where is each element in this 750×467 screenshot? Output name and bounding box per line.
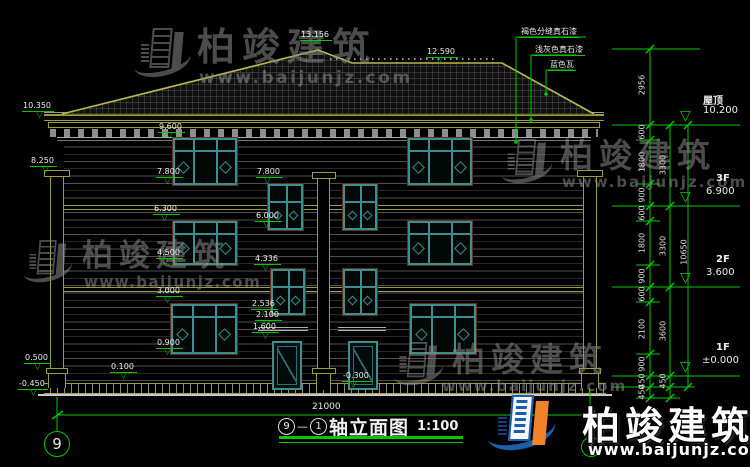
elevation-marker: 6.300▽ <box>153 204 180 222</box>
axis-circle-start: 9 <box>278 418 295 435</box>
elevation-marker: 12.590▽ <box>426 47 458 65</box>
material-label-blue-tile: 蓝色瓦 <box>548 60 576 71</box>
elevation-marker: 0.500▽ <box>24 353 51 371</box>
material-label-stone-paint-gray: 浅灰色真石漆 <box>533 45 585 56</box>
center-pilaster-pedestal <box>316 374 331 390</box>
logo-building <box>508 395 534 441</box>
elevation-marker: 6.000▽ <box>255 211 282 229</box>
window-triple <box>408 138 472 185</box>
dimension-value: 2956 <box>638 75 647 95</box>
brand-name: 柏竣建筑 <box>452 343 608 376</box>
dimension-value: 450 <box>659 373 668 388</box>
level-triangle: ▽ <box>680 272 691 284</box>
material-label-stone-paint-brown: 褐色分缝真石漆 <box>519 27 579 38</box>
window-stair <box>343 269 377 315</box>
entry-door-left <box>272 341 302 390</box>
elevation-marker: 4.336▽ <box>254 254 281 272</box>
dimension-value: 900 <box>638 268 647 283</box>
dimension-value: 1800 <box>638 233 647 253</box>
overall-width-dimension: 21000 <box>312 402 341 412</box>
brand-url: www.baijunjz.com <box>442 379 627 394</box>
title-underline-thick <box>279 436 463 439</box>
brand-name: 柏竣建筑 <box>197 28 377 66</box>
cad-elevation-drawing: 柏竣建筑 www.baijunjz.com 柏竣建筑 www.baijunjz.… <box>0 0 750 467</box>
level-triangle: ▽ <box>680 110 691 122</box>
drawing-scale: 1:100 <box>417 419 458 434</box>
dimension-value: 600 <box>638 286 647 301</box>
dimension-value: 900 <box>638 187 647 202</box>
floor-label-1f: 1F <box>716 342 730 353</box>
elevation-marker: 1.600▽ <box>252 322 279 340</box>
logo-windows <box>498 417 507 437</box>
floor-label-2f: 2F <box>716 254 730 265</box>
grid-bubble-9: 9 <box>44 431 70 457</box>
watermark-bottom: 柏竣建筑 www.baijunjz.com <box>396 340 636 398</box>
elevation-marker: -0.450▽ <box>18 379 48 397</box>
floor-value-roof: 10.200 <box>703 105 738 116</box>
title-underline-thin <box>279 442 463 443</box>
left-pilaster-pedestal <box>48 374 66 388</box>
window-stair <box>343 184 377 230</box>
level-triangle: ▽ <box>680 361 691 373</box>
dimension-value: 600 <box>638 124 647 139</box>
elevation-marker: 0.100▽ <box>110 362 137 380</box>
elevation-marker: 10.350▽ <box>22 101 54 119</box>
brand-url: www.baijunjz.com <box>199 70 413 87</box>
elevation-marker: -0.300▽ <box>342 371 372 389</box>
floor-label-3f: 3F <box>716 173 730 184</box>
dimension-value: 3600 <box>659 321 668 341</box>
dimension-value: 3300 <box>659 155 668 175</box>
center-pilaster-shaft <box>317 179 330 368</box>
dimension-value: 600 <box>638 205 647 220</box>
floor-value-2f: 3.600 <box>706 267 735 278</box>
dimension-ticks <box>646 45 692 402</box>
elevation-marker: 7.800▽ <box>256 167 283 185</box>
dimension-value: 10650 <box>680 239 689 264</box>
axis-separator: — <box>297 420 308 433</box>
elevation-marker: 9.600▽ <box>158 122 185 140</box>
axis-circle-end: 1 <box>310 418 327 435</box>
dimension-value: 3300 <box>659 236 668 256</box>
elevation-marker: 0.900▽ <box>156 338 183 356</box>
window-triple <box>408 221 472 265</box>
watermark-right: 柏竣建筑 www.baijunjz.com <box>504 137 750 193</box>
center-pilaster-capital <box>312 172 336 179</box>
watermark-left: 柏竣建筑 www.baijunjz.com <box>26 238 266 294</box>
brand-logo-color: 柏竣建筑 www.baijunjz.com <box>488 393 750 463</box>
dimension-value: 900 <box>638 356 647 371</box>
elevation-marker: 4.500▽ <box>156 248 183 266</box>
floor-value-3f: 6.900 <box>706 186 735 197</box>
elevation-marker: 3.000▽ <box>156 286 183 304</box>
door-lintel <box>338 327 386 331</box>
brand-url: www.baijunjz.com <box>588 440 750 459</box>
elevation-marker: 13.156▽ <box>300 30 332 48</box>
elevation-marker: 8.250▽ <box>30 156 57 174</box>
dimension-value: 1800 <box>638 152 647 172</box>
level-triangle: ▽ <box>680 191 691 203</box>
dimension-value: 2100 <box>638 319 647 339</box>
elevation-marker: 7.800▽ <box>156 167 183 185</box>
floor-value-1f: ±0.000 <box>702 355 739 366</box>
